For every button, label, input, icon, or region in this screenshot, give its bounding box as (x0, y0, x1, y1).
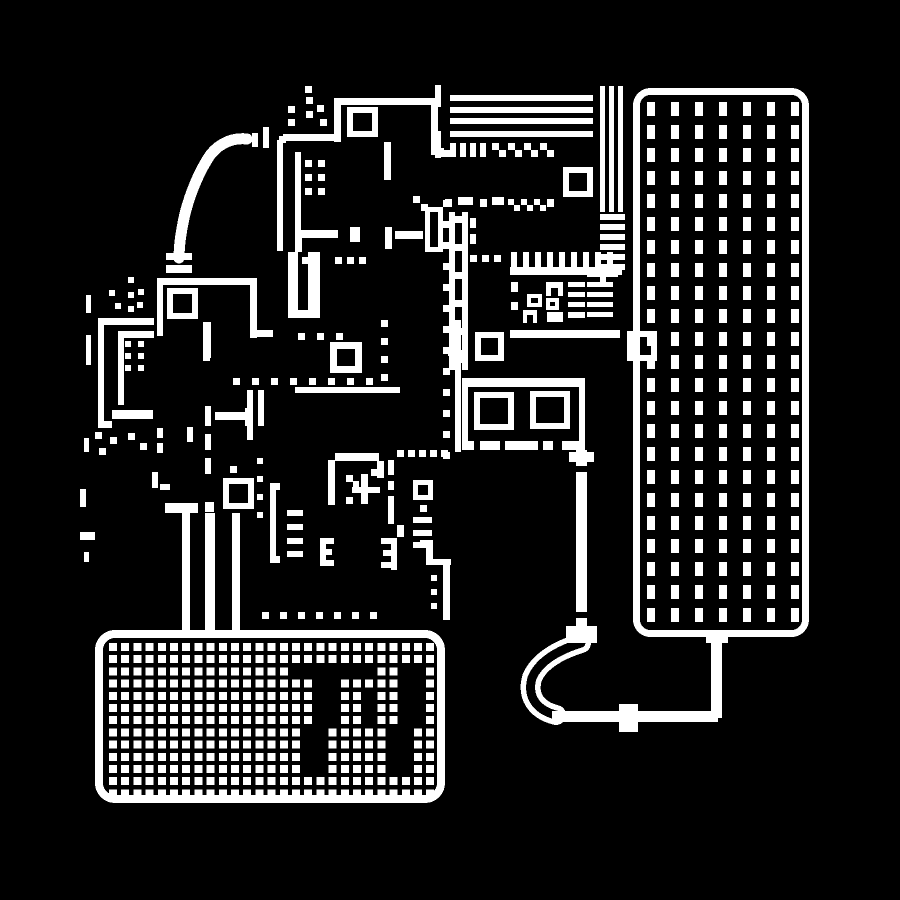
boiler-left (80, 277, 273, 562)
ladder-column (443, 200, 476, 459)
side-column (566, 86, 625, 270)
radiator (630, 92, 806, 634)
screenshot-root (0, 0, 900, 900)
storage-tank (99, 634, 441, 799)
pixel-art-scene (0, 0, 900, 900)
window-panel (462, 378, 585, 450)
gauge-panel (478, 252, 625, 358)
pipe-elbow (531, 643, 581, 715)
valve-unit (165, 320, 451, 632)
